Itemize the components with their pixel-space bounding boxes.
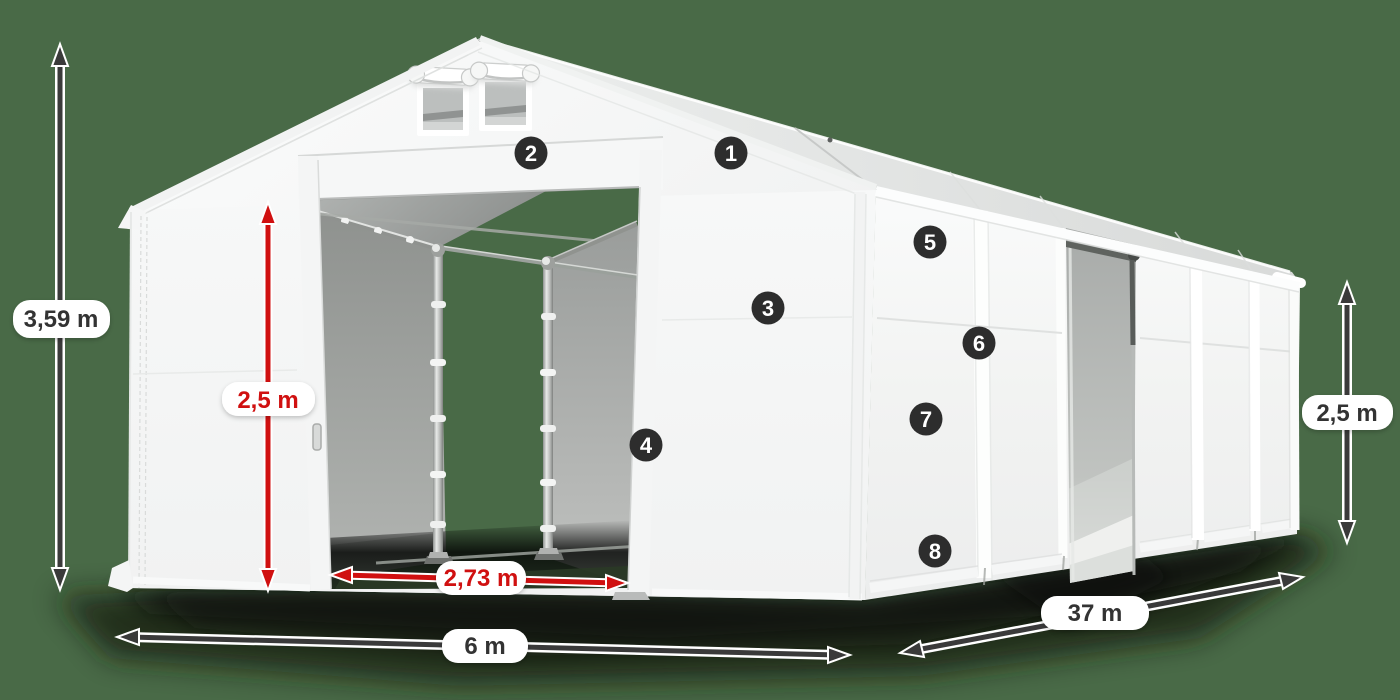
svg-text:2: 2 xyxy=(525,141,537,166)
svg-text:37 m: 37 m xyxy=(1068,600,1123,627)
svg-text:2,5 m: 2,5 m xyxy=(1316,400,1377,427)
svg-text:7: 7 xyxy=(920,407,932,432)
svg-text:6 m: 6 m xyxy=(464,633,505,660)
svg-text:3: 3 xyxy=(762,296,774,321)
svg-text:1: 1 xyxy=(725,141,737,166)
svg-text:8: 8 xyxy=(929,539,941,564)
svg-text:3,59 m: 3,59 m xyxy=(24,306,99,333)
svg-text:6: 6 xyxy=(973,331,985,356)
svg-text:2,73 m: 2,73 m xyxy=(444,565,519,592)
svg-text:2,5 m: 2,5 m xyxy=(237,387,298,414)
svg-text:4: 4 xyxy=(640,433,653,458)
svg-text:5: 5 xyxy=(924,230,936,255)
